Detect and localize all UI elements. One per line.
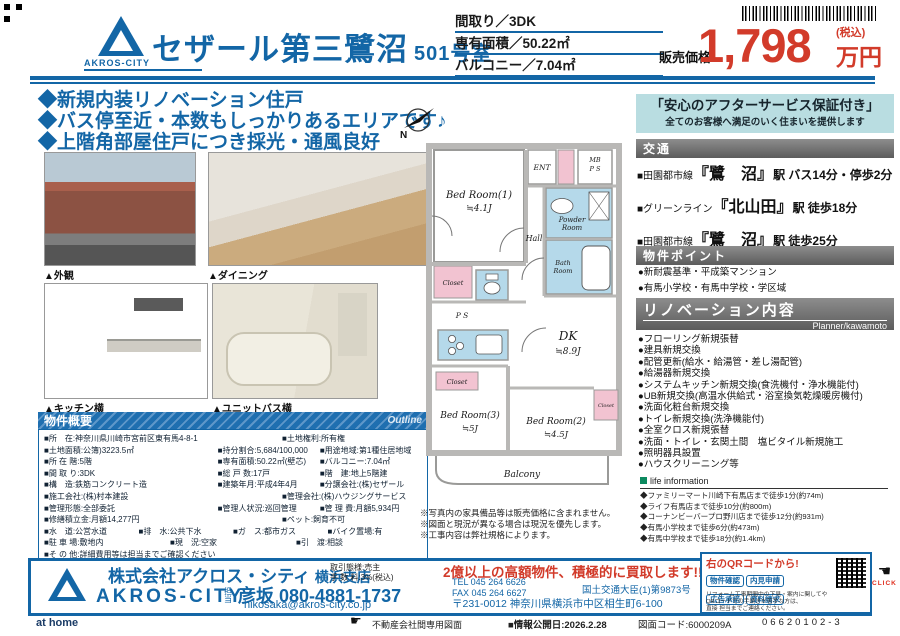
list-item: ◆有馬中学校まで徒歩18分(約1.4km) xyxy=(640,534,888,545)
room-label: Bed Room(1) xyxy=(445,190,512,201)
exterior-photo xyxy=(44,152,196,266)
flyer-page: AKROS-CITY セザール第三鷺沼501号室 間取り／3DK 専有面積／50… xyxy=(0,0,900,636)
range-hood xyxy=(134,298,183,312)
toilet-tank xyxy=(486,274,498,280)
qr-lead: 右のQRコードから! xyxy=(706,556,799,571)
click-label: CLICK xyxy=(872,580,897,587)
serial-number: 06620102-3 xyxy=(762,617,843,628)
room-label: Bath xyxy=(554,259,570,267)
table-row: ■構 造:鉄筋コンクリート造■建築年月:平成4年4月■分譲会社:(株)セザール xyxy=(44,479,422,491)
spec-value: 3DK xyxy=(509,14,536,29)
room-label: Room xyxy=(561,224,583,232)
qr-note: リフォーム工事期間中の下見・案内に関してや QRコードでの手続きが苦手な方は、 … xyxy=(706,592,827,613)
list-item: ●新耐震基準・平成築マンション xyxy=(638,265,786,281)
north-arrow xyxy=(404,108,434,128)
room-label: DK xyxy=(558,329,579,343)
outline-table: ■所 在:神奈川県川崎市宮前区東有馬4-8-1■土地権利:所有権 ■土地面積:公… xyxy=(38,429,428,562)
contact-email[interactable]: hikosaka@akros-city.co.jp xyxy=(244,599,371,611)
price-unit: 万円 xyxy=(836,38,882,72)
doc-type: 不動産会社間専用図面 xyxy=(372,618,462,631)
print-mark xyxy=(4,16,10,22)
room-label: Bed Room(2) xyxy=(525,416,586,427)
property-check-button[interactable]: 物件確認 xyxy=(706,575,744,587)
room-size: ≒4.5J xyxy=(544,430,569,440)
life-title-row: life information xyxy=(640,476,888,489)
room-size: ≒4.1J xyxy=(466,204,493,214)
spec-label: 専有面積 xyxy=(455,36,509,51)
list-item: ●給湯器新規交換 xyxy=(638,368,863,379)
list-item: ◆ライフ有馬店まで徒歩10分(約800m) xyxy=(640,502,888,513)
table-row: ■水 道:公営水道■排 水:公共下水■ガ ス:都市ガス■バイク置場:有 xyxy=(44,526,422,538)
list-item: ●トイレ新規交換(洗浄機能付) xyxy=(638,414,863,425)
points-list: ●新耐震基準・平成築マンション ●有馬小学校・有馬中学校・学区域 xyxy=(638,265,786,297)
logo-text-bottom: AKROS-CITY xyxy=(96,586,244,608)
qr-panel: 右のQRコードから! 物件確認内見申請広告承諾資料請求 リフォーム工事期間中の下… xyxy=(700,552,872,614)
catch-line: ◆バス停至近・本数もしっかりあるエリアです♪ xyxy=(38,111,447,132)
reno-planner: Planner/kawamoto xyxy=(643,320,887,331)
room-label: P S xyxy=(455,311,469,320)
green-square-icon xyxy=(640,477,647,484)
qr-code xyxy=(836,558,866,588)
transit-list: ■田園都市線『鷺 沼』駅 バス14分・停歩2分 ■グリーンライン『北山田』駅 徒… xyxy=(637,160,892,250)
list-item: ●システムキッチン新規交換(食洗機付・浄水機能付) xyxy=(638,380,863,391)
spec-label: バルコニー xyxy=(455,58,522,73)
room-label: Bed Room(3) xyxy=(439,410,500,421)
contact-label: 担当 xyxy=(224,588,234,604)
kitchen-sink xyxy=(476,335,502,354)
table-row: ■土地面積:公簿)3223.5㎡■持分割合:5,684/100,000■用途地域… xyxy=(44,445,422,457)
traffic-section-title: 交通 xyxy=(636,139,894,158)
release-date: ■情報公開日:2026.2.28 xyxy=(508,617,607,631)
list-item: ●照明器具設置 xyxy=(638,448,863,459)
list-item: ●UB新規交換(高温水供給式・浴室換気乾燥暖房機付) xyxy=(638,391,863,402)
pointing-hand-icon: ☚ xyxy=(872,562,897,580)
room-label: Closet xyxy=(447,378,468,386)
table-row: ■間 取 り:3DK■総 戸 数:17戸■階 建:地上5階建 xyxy=(44,468,422,480)
toilet-icon xyxy=(484,282,500,294)
logo-underline xyxy=(84,69,202,71)
guarantee-box: 「安心のアフターサービス保証付き」 全てのお客様へ満足のいく住まいを提供します xyxy=(636,94,894,133)
header-divider xyxy=(30,76,875,84)
price-value: 1,798 xyxy=(698,22,811,69)
burner xyxy=(456,342,463,349)
viewing-request-button[interactable]: 内見申請 xyxy=(746,575,784,587)
spec-balcony: バルコニー／7.04㎡ xyxy=(455,54,663,77)
table-row: ■管理形態:全部委託■管理人状況:巡回管理■管 理 費:月額5,934円 xyxy=(44,503,422,515)
room-label: Room xyxy=(553,267,573,275)
bath-photo xyxy=(212,283,378,399)
print-mark xyxy=(4,4,10,10)
table-row: ■駐 車 場:敷地内■現 況:空家■引 渡:相談 xyxy=(44,537,422,549)
spec-value: 7.04㎡ xyxy=(536,58,576,73)
list-item: ●ハウスクリーニング等 xyxy=(638,459,863,470)
north-label: N xyxy=(400,130,407,141)
reno-section: リノベーション内容 Planner/kawamoto xyxy=(636,298,894,330)
deal-info: 取引態様:売主 手 数 料:3%(税込) xyxy=(330,563,394,583)
license-number: 国土交通大臣(1)第9873号 xyxy=(582,582,691,596)
company-address: 〒231-0012 神奈川県横浜市中区相生町6-100 xyxy=(452,596,663,611)
bath-mirror xyxy=(338,293,368,356)
pointing-hand-icon: ☛ xyxy=(350,613,362,629)
drawing-code: 図面コード:6000209A xyxy=(638,617,731,631)
outline-header: 物件概要 Outline xyxy=(38,412,428,429)
list-item: ●洗面化粧台新規交換 xyxy=(638,402,863,413)
list-item: ◆コーナンビーバープロ野川店まで徒歩12分(約931m) xyxy=(640,512,888,523)
sink xyxy=(551,199,573,214)
room-label: Closet xyxy=(598,403,615,409)
property-name: セザール第三鷺沼 xyxy=(152,32,408,67)
catch-line: ◆上階角部屋住戸につき採光・通風良好 xyxy=(38,132,447,153)
akros-logo-icon-small xyxy=(48,568,86,601)
spec-area: 専有面積／50.22㎡ xyxy=(455,32,663,55)
room-size: ≒5J xyxy=(462,424,479,434)
burner xyxy=(448,335,455,342)
print-mark xyxy=(16,4,22,10)
life-information: life information ◆ファミリーマート川崎下有馬店まで徒歩1分(約… xyxy=(640,476,888,545)
points-section-title: 物件ポイント xyxy=(636,246,894,265)
transit-item: ■グリーンライン『北山田』駅 徒歩18分 xyxy=(637,193,892,217)
list-item: ●建具新規交換 xyxy=(638,345,863,356)
floorplan: N xyxy=(396,88,636,506)
list-item: ●洗面・トイレ・玄関土間 塩ビタイル新規施工 xyxy=(638,437,863,448)
spec-madori: 間取り／3DK xyxy=(455,10,663,33)
table-row: ■施工会社:(株)村本建設■管理会社:(株)ハウジングサービス xyxy=(44,491,422,503)
kitchen-counter xyxy=(107,339,201,352)
page-title: セザール第三鷺沼501号室 xyxy=(152,24,492,69)
spec-label: 間取り xyxy=(455,14,496,29)
list-item: ●配管更新(給水・給湯管・差し湯配管) xyxy=(638,357,863,368)
life-title: life information xyxy=(650,476,709,486)
room-size: ≒8.9J xyxy=(555,347,582,357)
list-item: ●フローリング新規張替 xyxy=(638,334,863,345)
burner xyxy=(448,347,455,354)
outline-title: 物件概要 xyxy=(44,412,92,429)
list-item: ◆有馬小学校まで徒歩6分(約473m) xyxy=(640,523,888,534)
room-label: Closet xyxy=(443,279,464,287)
catch-copy: ◆新規内装リノベーション住戸 ◆バス停至近・本数もしっかりあるエリアです♪ ◆上… xyxy=(38,90,447,153)
room-label: Balcony xyxy=(503,470,541,480)
kitchen-photo xyxy=(44,283,208,399)
ps-box xyxy=(558,150,574,184)
list-item: ●全室クロス新規張替 xyxy=(638,425,863,436)
logo-text: AKROS-CITY xyxy=(84,58,150,68)
reno-list: ●フローリング新規張替 ●建具新規交換 ●配管更新(給水・給湯管・差し湯配管) … xyxy=(638,334,863,471)
table-row: ■所 在 階:5階■専有面積:50.22㎡(壁芯)■バルコニー:7.04㎡ xyxy=(44,456,422,468)
dining-caption: ▲ダイニング xyxy=(208,267,268,282)
guarantee-title: 「安心のアフターサービス保証付き」 xyxy=(636,94,894,114)
guarantee-sub: 全てのお客様へ満足のいく住まいを提供します xyxy=(636,114,894,128)
transit-item: ■田園都市線『鷺 沼』駅 バス14分・停歩2分 xyxy=(637,160,892,184)
floorplan-notes: ※写真内の家具備品等は販売価格に含まれません。 ※図面と現況が異なる場合は現況を… xyxy=(420,508,615,541)
athome-logo: at home xyxy=(36,617,78,629)
click-hand: ☚ CLICK xyxy=(872,562,897,587)
akros-logo-icon xyxy=(98,16,144,56)
spec-value: 50.22㎡ xyxy=(523,36,570,51)
room-label: P S xyxy=(589,165,601,173)
bathtub-icon xyxy=(582,246,610,290)
table-row: ■修繕積立金:月額14,277円■ペット:飼育不可 xyxy=(44,514,422,526)
table-row: ■所 在:神奈川県川崎市宮前区東有馬4-8-1■土地権利:所有権 xyxy=(44,433,422,445)
room-label: Hall xyxy=(525,234,543,243)
reno-title: リノベーション内容 xyxy=(643,299,887,320)
room-label: Powder xyxy=(558,216,586,224)
catch-line: ◆新規内装リノベーション住戸 xyxy=(38,90,447,111)
list-item: ◆ファミリーマート川崎下有馬店まで徒歩1分(約74m) xyxy=(640,491,888,502)
room-label: ENT xyxy=(532,163,551,172)
bathtub xyxy=(226,332,332,386)
list-item: ●有馬小学校・有馬中学校・学区域 xyxy=(638,281,786,297)
exterior-caption: ▲外観 xyxy=(44,267,74,282)
room-label: MB xyxy=(588,156,601,164)
